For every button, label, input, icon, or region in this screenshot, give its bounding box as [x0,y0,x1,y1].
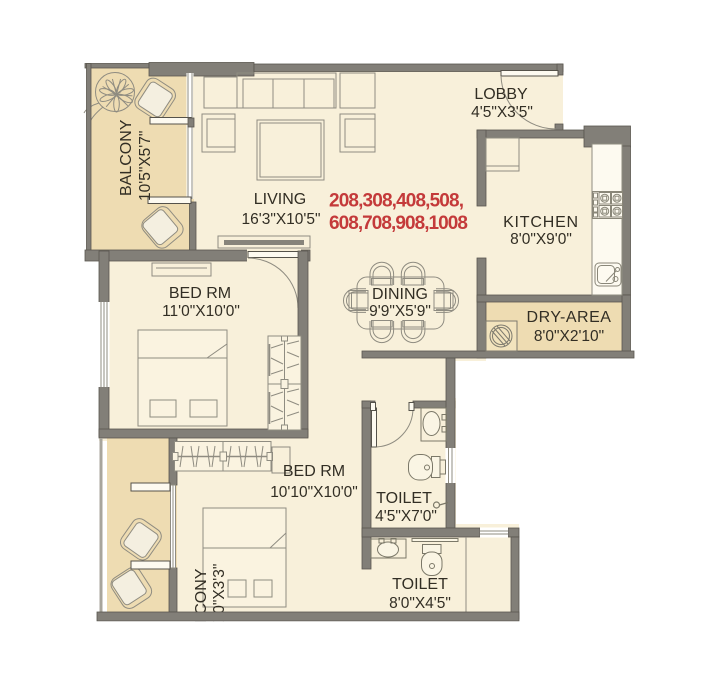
svg-text:4'5"X7'0": 4'5"X7'0" [375,508,437,525]
svg-text:LIVING: LIVING [254,191,306,208]
svg-text:4'5"X3'5": 4'5"X3'5" [471,104,533,121]
svg-text:10'10"X10'0": 10'10"X10'0" [270,484,358,501]
svg-text:KITCHEN: KITCHEN [503,214,579,231]
svg-text:10'5"X5'7": 10'5"X5'7" [137,131,154,201]
svg-text:8'0"X4'5": 8'0"X4'5" [389,595,451,612]
svg-text:9'9"X5'9": 9'9"X5'9" [369,303,431,320]
svg-text:TOILET: TOILET [376,490,432,507]
svg-text:208,308,408,508,: 208,308,408,508, [329,191,464,212]
svg-text:BALCONY: BALCONY [118,119,135,196]
svg-text:16'3"X10'5": 16'3"X10'5" [242,211,321,228]
svg-text:TOILET: TOILET [392,576,448,593]
svg-text:LOBBY: LOBBY [474,86,528,103]
svg-text:608,708,908,1008: 608,708,908,1008 [329,213,468,234]
svg-text:DRY-AREA: DRY-AREA [527,309,612,326]
svg-text:BED RM: BED RM [169,285,231,302]
svg-text:DINING: DINING [372,286,428,303]
svg-text:8'0"X9'0": 8'0"X9'0" [510,231,572,248]
svg-text:BED RM: BED RM [283,463,345,480]
svg-text:8'0"X2'10": 8'0"X2'10" [534,328,604,345]
svg-text:11'0"X10'0": 11'0"X10'0" [162,303,240,320]
